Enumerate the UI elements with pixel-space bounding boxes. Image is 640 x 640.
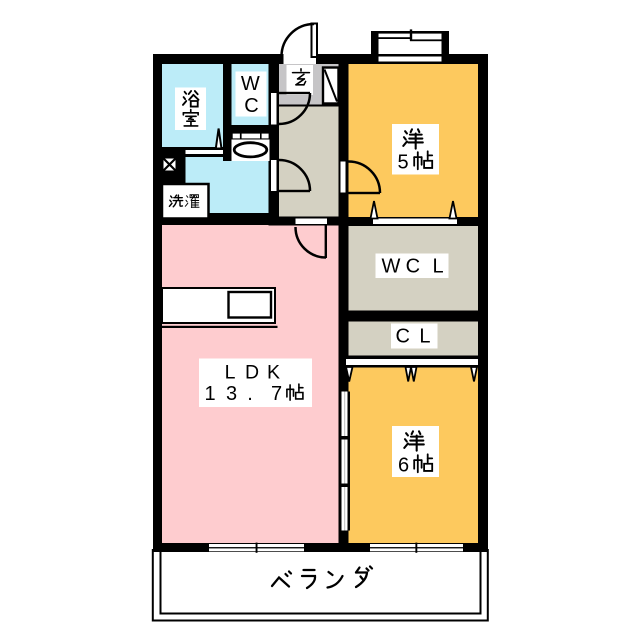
svg-text:3: 3: [226, 383, 237, 405]
svg-text:C: C: [244, 95, 258, 117]
svg-text:W: W: [382, 255, 401, 277]
svg-text:K: K: [267, 362, 280, 384]
svg-text:1: 1: [204, 383, 215, 405]
svg-text:C: C: [406, 255, 420, 277]
svg-text:L: L: [419, 326, 430, 348]
svg-text:6: 6: [398, 454, 409, 476]
svg-text:D: D: [245, 362, 259, 384]
svg-text:C: C: [395, 326, 409, 348]
svg-text:.: .: [247, 383, 253, 405]
svg-text:L: L: [225, 362, 236, 384]
svg-text:7: 7: [271, 383, 282, 405]
svg-text:W: W: [241, 73, 260, 95]
svg-text:5: 5: [397, 151, 408, 173]
svg-text:L: L: [433, 255, 444, 277]
